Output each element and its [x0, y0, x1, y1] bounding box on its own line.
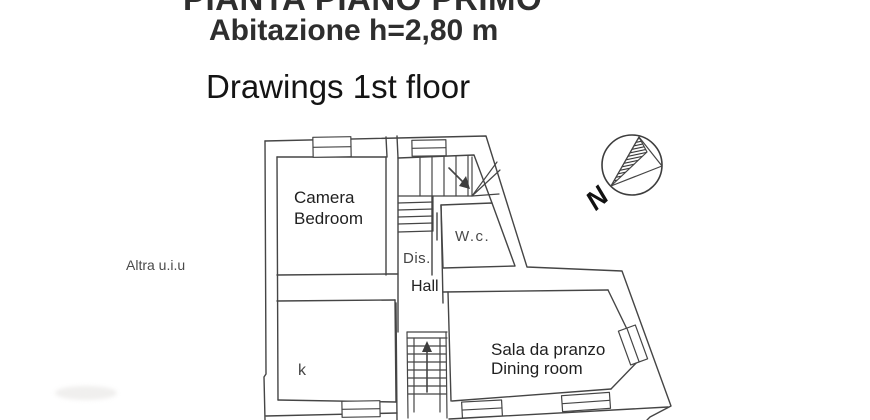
dining-label-en: Dining room	[491, 359, 605, 378]
lower-stair-direction-arrow	[422, 341, 432, 392]
floorplan-page: PIANTA PIANO PRIMO Abitazione h=2,80 m D…	[0, 0, 870, 420]
window	[462, 400, 503, 418]
disimpegno-label: Dis.	[403, 250, 431, 267]
kitchen-label: k	[298, 362, 306, 380]
dining-label-it: Sala da pranzo	[491, 340, 605, 359]
other-unit-note: Altra u.i.u	[126, 257, 185, 273]
bedroom-label-it: Camera	[294, 187, 363, 208]
wc-label: W.c.	[455, 228, 490, 245]
window	[562, 392, 611, 411]
window	[313, 137, 351, 158]
upper-stair-direction-arrow	[449, 168, 470, 189]
bedroom-label-en: Bedroom	[294, 208, 363, 229]
dining-room-label: Sala da pranzo Dining room	[491, 340, 605, 378]
floor-plan-drawing: N	[0, 0, 870, 420]
bedroom-label: Camera Bedroom	[294, 187, 363, 229]
compass	[602, 135, 662, 195]
window	[412, 140, 446, 157]
window	[342, 401, 380, 418]
hall-label: Hall	[411, 278, 439, 296]
